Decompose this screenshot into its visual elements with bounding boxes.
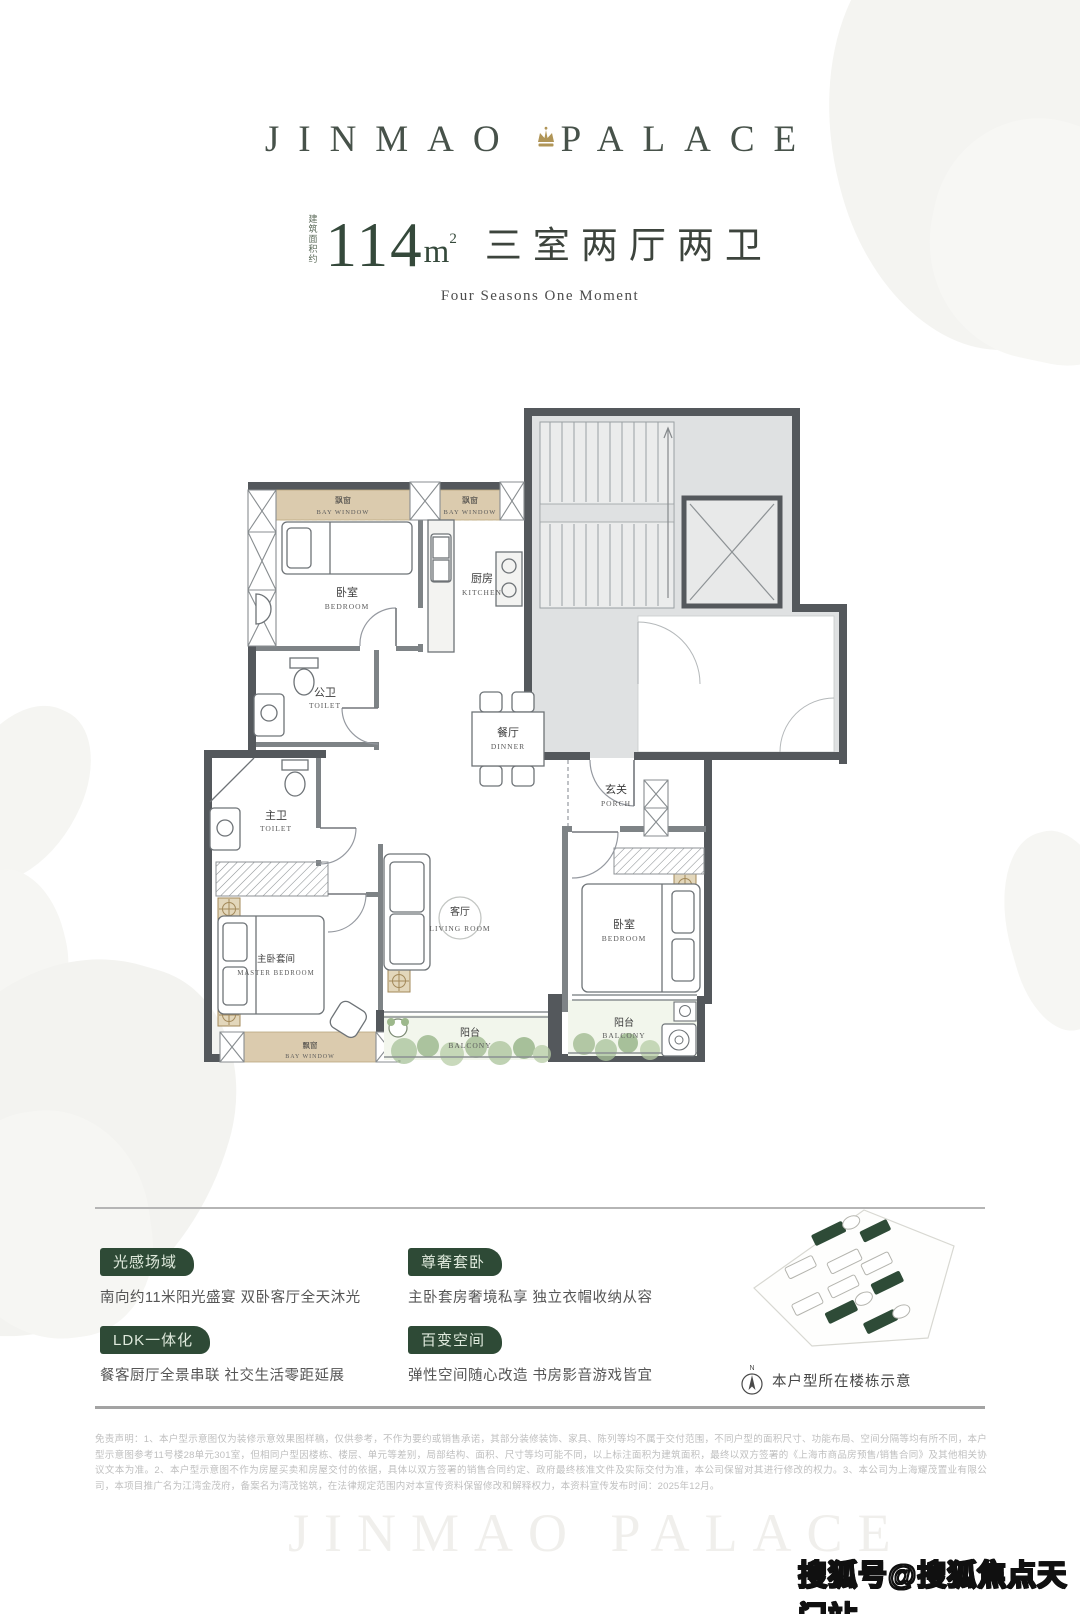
svg-text:PORCH: PORCH (601, 799, 631, 808)
svg-text:MASTER BEDROOM: MASTER BEDROOM (237, 970, 314, 977)
site-plan-caption-row: N 本户型所在楼栋示意 (740, 1362, 912, 1398)
washer (662, 1024, 696, 1056)
room-label: 主卧套间 (257, 953, 295, 965)
svg-text:LIVING ROOM: LIVING ROOM (429, 924, 490, 933)
room-label: 阳台 (460, 1026, 480, 1039)
petal-decoration (0, 1097, 165, 1353)
floor-plan: 飘窗 BAY WINDOW 飘窗 BAY WINDOW 卧室 BEDROOM 厨… (192, 398, 847, 1068)
feature-flex-space: 百变空间 弹性空间随心改造 书房影音游戏皆宜 (408, 1326, 708, 1385)
petal-decoration (0, 859, 82, 1028)
poster-page: JINMAO PALACE 建筑面积约 114 m 2 三室两厅两卫 Four … (0, 0, 1080, 1614)
feature-desc: 餐客厨厅全景串联 社交生活零距延展 (100, 1364, 400, 1385)
feature-master-suite: 尊奢套卧 主卧套房奢境私享 独立衣帽收纳从容 (408, 1248, 708, 1307)
disclaimer-text: 免责声明：1、本户型示意图仅为装修示意效果图样稿，仅供参考，不作为要约或销售承诺… (95, 1432, 987, 1494)
room-label: 公卫 (314, 687, 336, 699)
petal-decoration (0, 684, 113, 906)
feature-tag: 光感场域 (100, 1248, 194, 1276)
petal-decoration (771, 0, 1080, 386)
neighbor-hall (638, 616, 834, 752)
feature-tag: LDK一体化 (100, 1326, 210, 1354)
unit-title: 建筑面积约 114 m 2 三室两厅两卫 (0, 214, 1080, 272)
svg-text:BAY WINDOW: BAY WINDOW (317, 509, 370, 516)
room-label: 飘窗 (303, 1040, 318, 1050)
feature-ldk: LDK一体化 餐客厨厅全景串联 社交生活零距延展 (100, 1326, 400, 1385)
room-label: 飘窗 (335, 495, 351, 505)
subtitle: Four Seasons One Moment (0, 288, 1080, 305)
svg-text:N: N (749, 1365, 754, 1372)
feature-tag: 尊奢套卧 (408, 1248, 502, 1276)
room-label: 餐厅 (497, 725, 519, 739)
petal-decoration (983, 819, 1080, 1042)
building-site-plan (716, 1188, 986, 1366)
toilet-fixture (294, 669, 314, 695)
area-power: 2 (449, 231, 457, 248)
feature-light: 光感场域 南向约11米阳光盛宴 双卧客厅全天沐光 (100, 1248, 400, 1307)
feature-desc: 弹性空间随心改造 书房影音游戏皆宜 (408, 1364, 708, 1385)
room-label: 主卫 (265, 809, 287, 822)
svg-text:BEDROOM: BEDROOM (325, 602, 370, 611)
room-label: 玄关 (605, 782, 627, 796)
room-count-title: 三室两厅两卫 (485, 215, 773, 272)
feature-desc: 南向约11米阳光盛宴 双卧客厅全天沐光 (100, 1286, 400, 1307)
stove (496, 552, 522, 606)
room-label: 卧室 (336, 585, 358, 599)
compass-icon: N (740, 1362, 764, 1398)
brand-logo: JINMAO PALACE (0, 118, 1080, 161)
divider-bottom (95, 1406, 985, 1409)
room-label: 厨房 (471, 572, 493, 585)
area-number: 114 (326, 220, 424, 272)
crown-icon (533, 118, 559, 161)
wardrobe (614, 848, 704, 874)
room-label: 阳台 (614, 1016, 634, 1029)
room-label: 飘窗 (462, 495, 478, 505)
site-plan-caption: 本户型所在楼栋示意 (772, 1370, 912, 1391)
svg-text:BALCONY: BALCONY (602, 1031, 645, 1040)
svg-text:TOILET: TOILET (309, 701, 341, 710)
feature-tag: 百变空间 (408, 1326, 502, 1354)
svg-text:DINNER: DINNER (491, 742, 525, 751)
svg-text:TOILET: TOILET (260, 824, 292, 833)
sohu-watermark: 搜狐号@搜狐焦点天门站 (798, 1552, 1080, 1614)
balconies (384, 1000, 697, 1066)
dining-table (472, 712, 544, 766)
room-label: 客厅 (450, 905, 470, 918)
area-unit: m (424, 234, 450, 272)
feature-desc: 主卧套房奢境私享 独立衣帽收纳从容 (408, 1286, 708, 1307)
svg-text:BAY WINDOW: BAY WINDOW (444, 509, 497, 516)
svg-text:BEDROOM: BEDROOM (602, 934, 647, 943)
walk-in-closet (216, 862, 328, 896)
area-note: 建筑面积约 (307, 214, 317, 272)
brand-logo-right: PALACE (561, 118, 816, 161)
brand-logo-left: JINMAO (265, 118, 519, 161)
svg-text:BALCONY: BALCONY (448, 1041, 491, 1050)
svg-text:KITCHEN: KITCHEN (462, 588, 502, 597)
room-label: 卧室 (613, 917, 635, 931)
svg-text:BAY WINDOW: BAY WINDOW (285, 1054, 335, 1060)
